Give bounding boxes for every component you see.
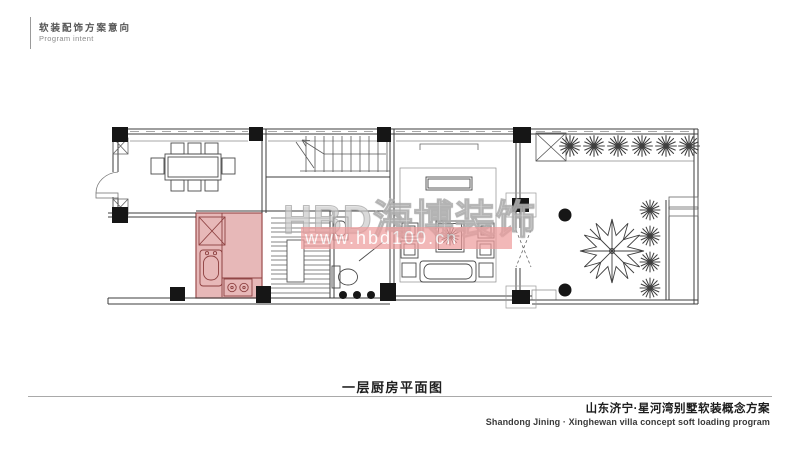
tree-trunk-dot [559, 284, 572, 297]
staircase-up [296, 136, 390, 172]
shrub-icon [640, 200, 661, 221]
shrub-icon [655, 135, 677, 157]
entry-door [96, 172, 118, 198]
shrub-icon [640, 226, 661, 247]
project-title-block: 山东济宁·星河湾别墅软装概念方案 Shandong Jining · Xingh… [486, 400, 770, 427]
footer-divider [28, 396, 772, 397]
plan-caption: 一层厨房平面图 [342, 377, 444, 396]
shrub-icon [631, 135, 653, 157]
url-watermark-text: www.hbd100.cn [301, 228, 458, 249]
shrub-icon [607, 135, 629, 157]
tree-trunk-dot [559, 209, 572, 222]
project-title-cn: 山东济宁·星河湾别墅软装概念方案 [486, 400, 770, 416]
shrub-icon [640, 278, 661, 299]
project-title-en: Shandong Jining · Xinghewan villa concep… [486, 417, 770, 427]
sofa [420, 261, 476, 282]
planter-box-icon [536, 133, 566, 161]
dining-chair [171, 180, 218, 191]
dining-chair [171, 143, 218, 154]
kitchen-highlight [196, 213, 262, 298]
shrub-icon [640, 252, 661, 273]
shrub-icon [583, 135, 605, 157]
window-box-icon [113, 138, 128, 215]
url-watermark-band: www.hbd100.cn [301, 227, 512, 249]
dining-set [151, 143, 235, 191]
toilet-icon [332, 266, 358, 288]
shrub-icon [559, 135, 581, 157]
curtain-bracket [420, 144, 478, 150]
dining-chair [151, 158, 235, 174]
tree-icon [580, 219, 644, 283]
dining-table [165, 154, 221, 180]
side-table [402, 263, 493, 277]
shrub-icon [678, 135, 700, 157]
